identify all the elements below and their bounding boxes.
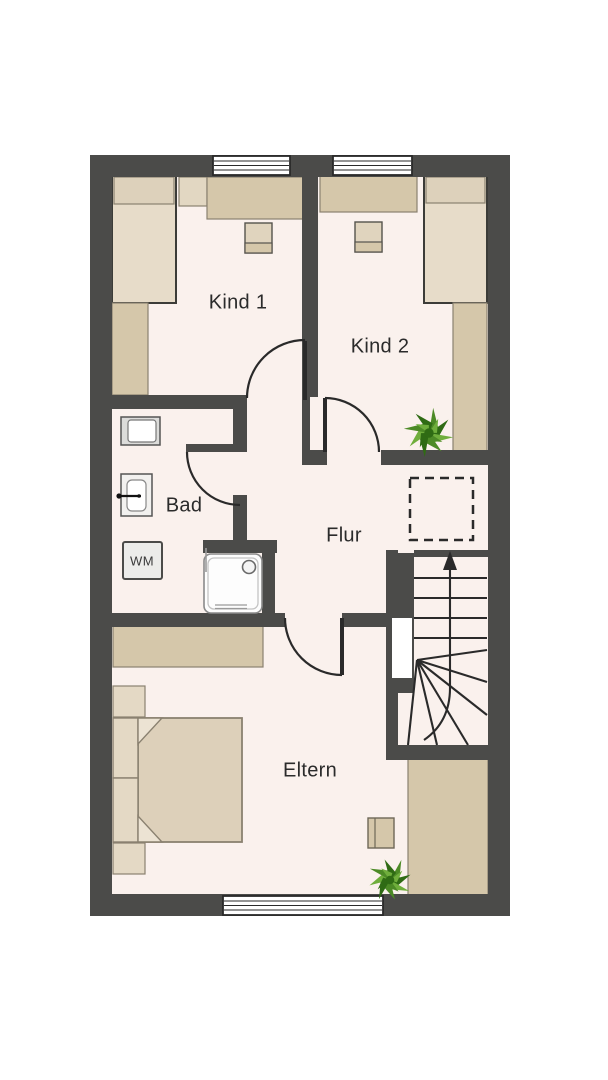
kind2-chair (355, 222, 382, 252)
washing-machine-label: WM (130, 554, 154, 569)
wall-kind2-south-stub (302, 450, 327, 465)
wall-kind2-south (381, 450, 488, 465)
room-label-kind2: Kind 2 (351, 336, 410, 359)
eltern-nightstand-top (113, 686, 145, 717)
wall-bad-east-upper (233, 395, 247, 452)
wall-exterior-top (90, 155, 510, 177)
kind1-bed (112, 175, 176, 303)
window-eltern (223, 896, 383, 915)
kind2-desk (320, 175, 417, 212)
wall-eltern-north-right (342, 613, 388, 627)
eltern-nightstand-bottom (113, 843, 145, 874)
toilet-icon (121, 417, 160, 445)
wall-kind1-bad (112, 395, 243, 409)
wall-stairwell-south (386, 745, 510, 760)
window-kind2 (333, 156, 412, 175)
wall-shower-north (203, 540, 277, 553)
wall-kind2-west-thin (302, 397, 310, 453)
eltern-sideboard (113, 625, 263, 667)
eltern-side-table (368, 818, 394, 848)
kind1-chair (245, 223, 272, 253)
room-label-flur: Flur (326, 525, 362, 548)
floor-plan-canvas (0, 0, 608, 1080)
wall-exterior-left (90, 155, 112, 916)
window-kind1 (213, 156, 290, 175)
eltern-wardrobe (408, 758, 488, 902)
stairwell-wall-opening (392, 618, 412, 678)
shower-icon (204, 548, 262, 613)
floor-plan: Kind 1 Kind 2 Bad Flur Eltern WM (0, 0, 608, 1080)
kind2-wardrobe (453, 303, 487, 453)
wall-eltern-north (90, 613, 285, 627)
sink-icon (116, 474, 152, 516)
room-label-kind1: Kind 1 (209, 292, 268, 315)
kind1-shelf (179, 177, 207, 206)
kind1-wardrobe (112, 303, 148, 395)
room-label-eltern: Eltern (283, 760, 337, 783)
kind1-desk (207, 177, 308, 219)
wall-exterior-right (488, 155, 510, 916)
wall-shower-east (262, 553, 275, 615)
room-label-bad: Bad (166, 495, 203, 518)
eltern-double-bed (113, 718, 242, 842)
kind2-bed (424, 175, 487, 303)
